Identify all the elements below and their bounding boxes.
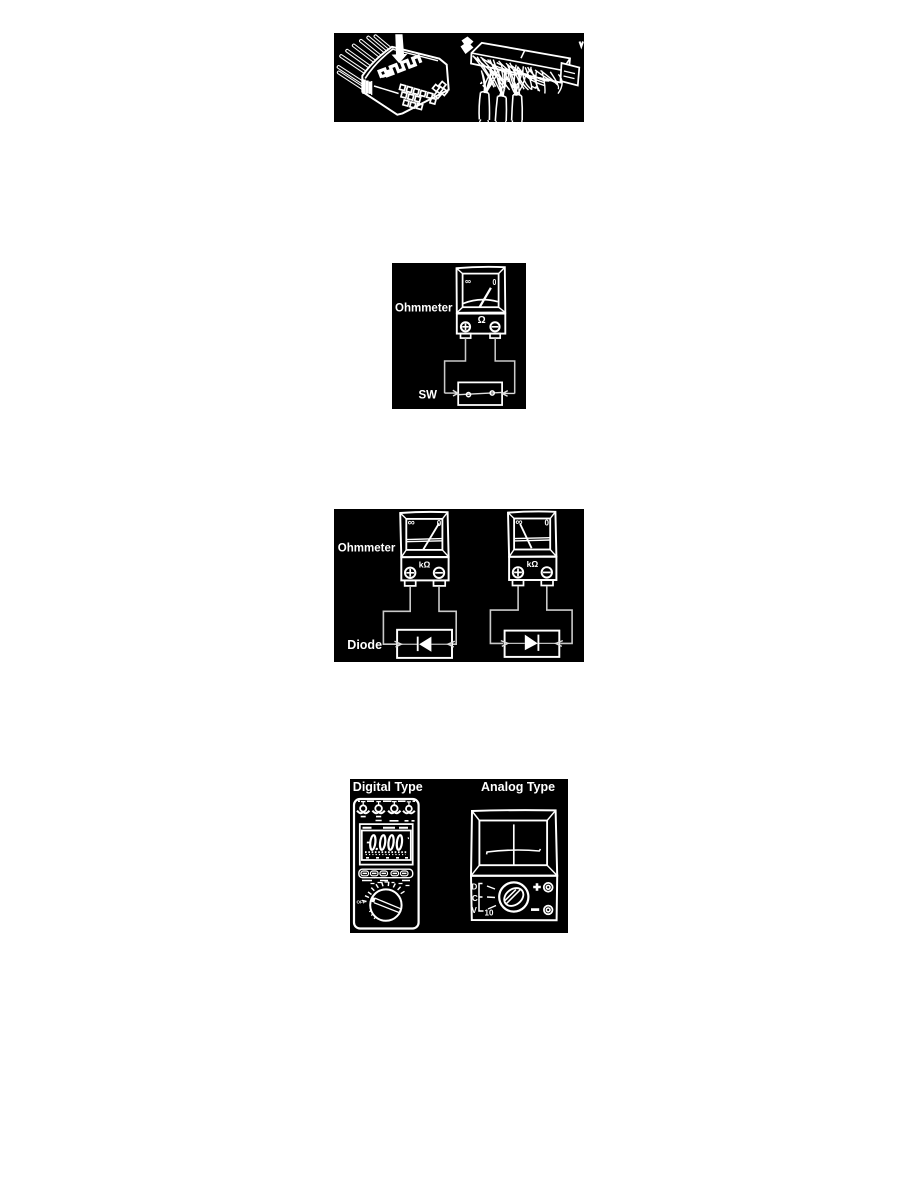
svg-text:V: V — [472, 906, 478, 915]
svg-text:Diode: Diode — [347, 638, 382, 652]
svg-text:∞: ∞ — [465, 276, 471, 286]
svg-text:10: 10 — [485, 909, 494, 918]
svg-text:Digital Type: Digital Type — [353, 780, 423, 794]
svg-text:Analog Type: Analog Type — [481, 780, 555, 794]
svg-text:SW: SW — [419, 389, 438, 401]
svg-text:OFF: OFF — [357, 900, 366, 905]
svg-text:D: D — [472, 883, 478, 892]
svg-text:0: 0 — [492, 277, 496, 287]
svg-text:Ohmmeter: Ohmmeter — [338, 543, 396, 555]
svg-text:Ohmmeter: Ohmmeter — [395, 303, 453, 315]
svg-text:Ω: Ω — [478, 315, 486, 326]
svg-text:C: C — [472, 894, 478, 903]
